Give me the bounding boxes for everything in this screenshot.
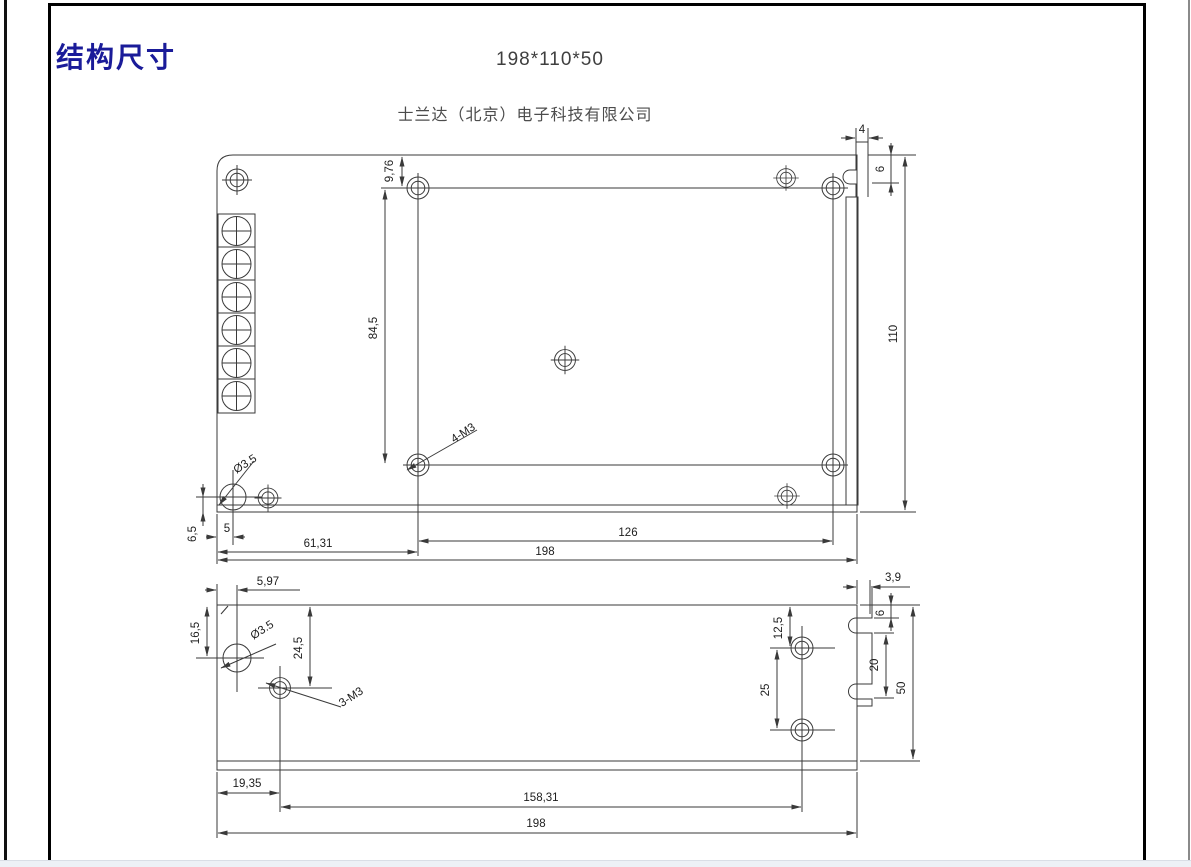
- right-flange-plate: [846, 197, 858, 505]
- dim-61-31: 61,31: [304, 538, 333, 550]
- hole-dia-label: Ø3.5: [232, 453, 259, 477]
- screw-hole: [773, 165, 799, 191]
- dim-5: 5: [224, 523, 230, 535]
- dim-19-35: 19,35: [233, 778, 262, 790]
- dim-5-97: 5,97: [257, 576, 279, 588]
- dim-126: 126: [618, 527, 637, 539]
- dim-24-5: 24,5: [293, 637, 305, 659]
- m3-hole-small: [255, 485, 282, 512]
- dim-84-5: 84,5: [368, 317, 380, 339]
- dim-9-76: 9,76: [384, 160, 396, 182]
- m3-hole: [403, 450, 433, 480]
- terminal-screw: [222, 349, 251, 378]
- m3-callout: 3-M3: [337, 685, 366, 709]
- right-bracket: [849, 588, 872, 706]
- terminal-block: [218, 214, 255, 413]
- dim-4: 4: [859, 124, 866, 136]
- dim-198: 198: [535, 546, 554, 558]
- terminal-screw: [222, 217, 251, 246]
- dim-6: 6: [875, 610, 887, 616]
- dim-6-5: 6,5: [187, 526, 199, 542]
- dim-6: 6: [875, 166, 887, 172]
- dim-20: 20: [869, 659, 881, 672]
- corner-screw-hole: [222, 165, 252, 195]
- dim-16-5: 16,5: [190, 622, 202, 644]
- hole-dia-label: Ø3.5: [249, 619, 276, 643]
- corner-tick: [221, 606, 228, 614]
- technical-drawing: 9,76 84,5 110 4 6 Ø3.5 4: [0, 0, 1191, 867]
- m3-callout: 4-M3: [449, 421, 478, 445]
- terminal-screw: [222, 250, 251, 279]
- dim-158-31: 158,31: [523, 792, 558, 804]
- terminal-screw: [222, 316, 251, 345]
- drawing-page: 结构尺寸 198*110*50 士兰达（北京）电子科技有限公司: [0, 0, 1191, 867]
- dim-50: 50: [896, 682, 908, 695]
- dim-198: 198: [526, 818, 545, 830]
- center-screw-hole: [551, 346, 580, 375]
- dim-12-5: 12,5: [773, 617, 785, 639]
- terminal-screw: [222, 382, 251, 411]
- dim-25: 25: [760, 684, 772, 697]
- dim-3-9: 3,9: [885, 572, 901, 584]
- terminal-screw: [222, 283, 251, 312]
- leader-line: [221, 644, 276, 668]
- m3-hole: [818, 450, 848, 480]
- top-view: 9,76 84,5 110 4 6 Ø3.5 4: [187, 124, 916, 564]
- m3-hole: [403, 173, 433, 203]
- leader-line: [266, 683, 341, 707]
- side-view: 5,97 16,5 24,5 Ø3.5 3-M3 12,5 25 20: [190, 572, 920, 838]
- dim-110: 110: [888, 325, 900, 343]
- top-right-bracket-tab: [843, 142, 868, 197]
- chassis-outline: [217, 155, 857, 512]
